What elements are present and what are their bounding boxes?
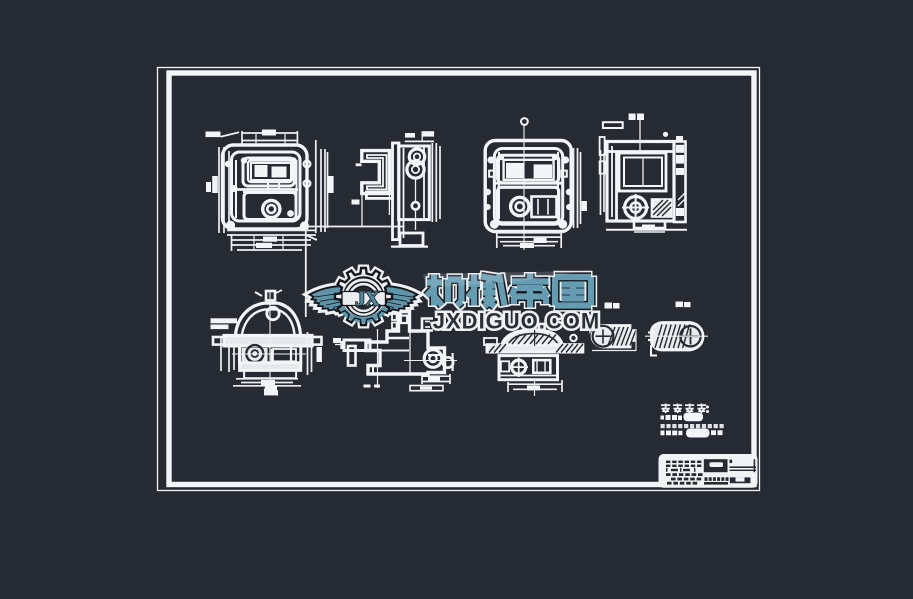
- svg-text:JX: JX: [355, 287, 380, 311]
- svg-text:JXDIGUO.COM: JXDIGUO.COM: [433, 309, 600, 334]
